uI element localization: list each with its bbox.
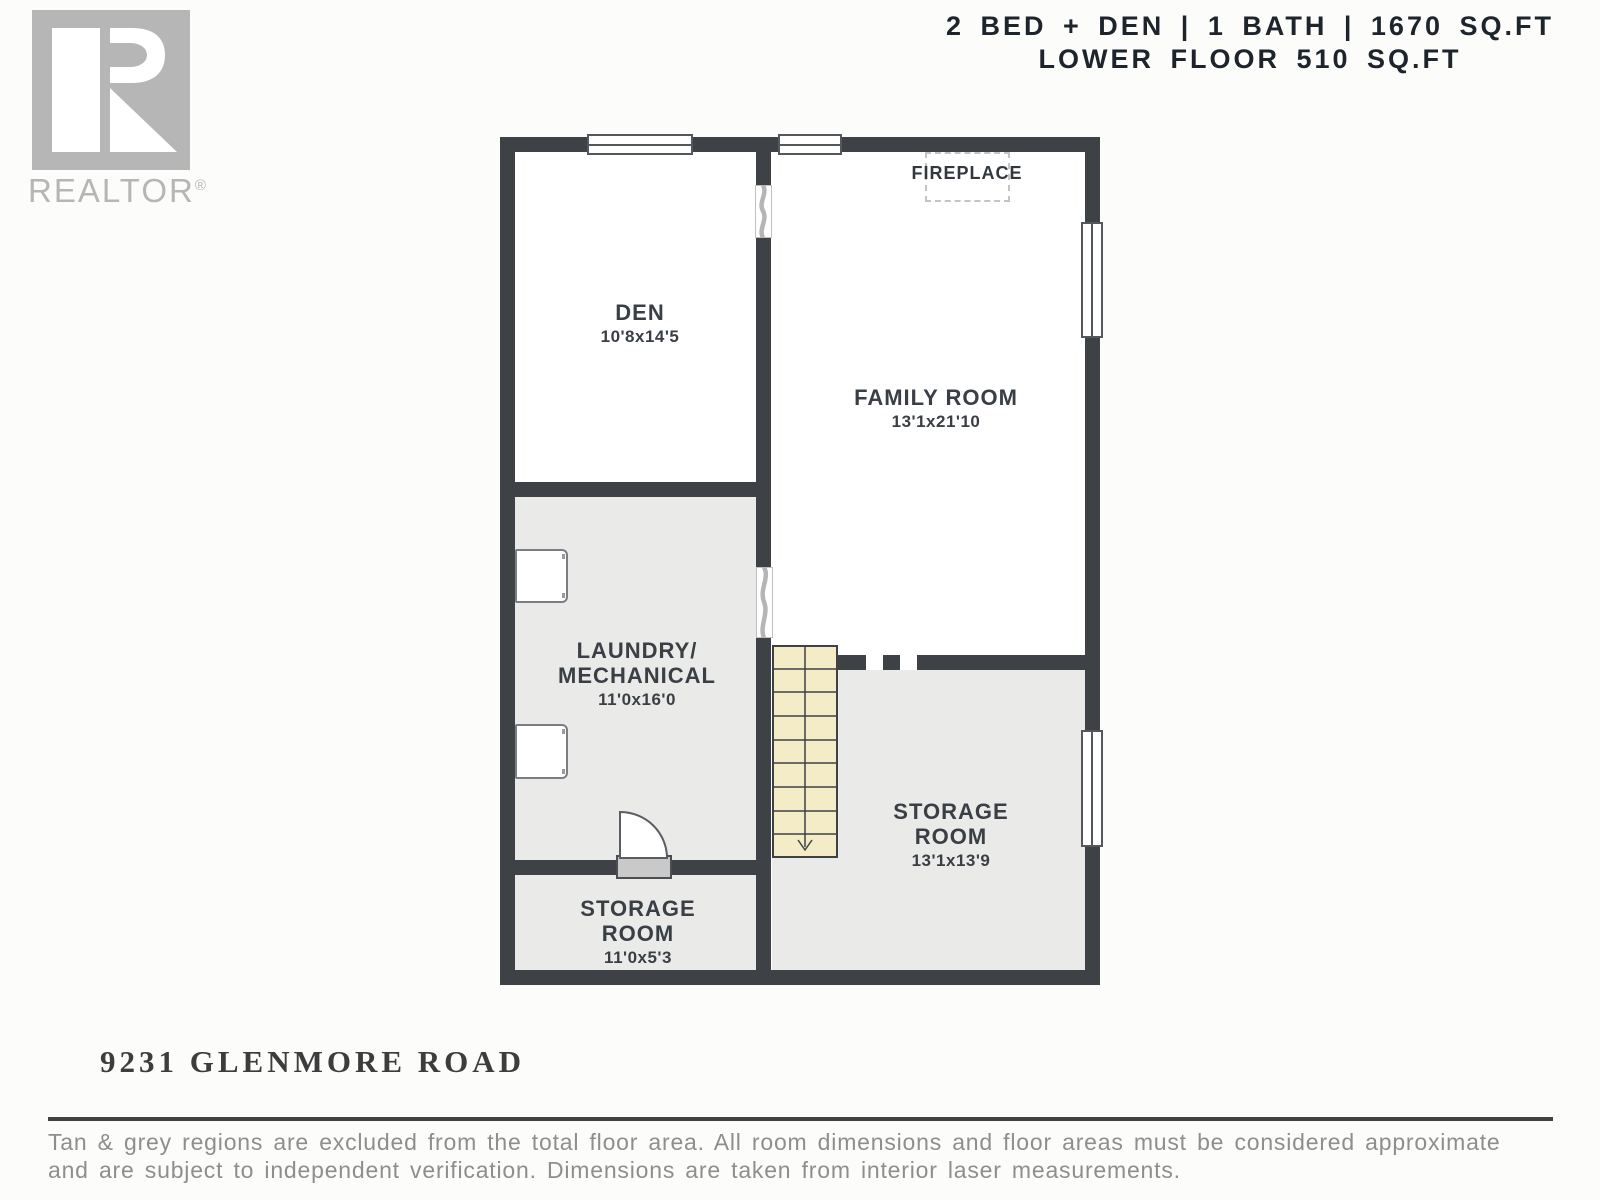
room-label-den: DEN 10'8x14'5 [601, 300, 680, 349]
laundry-name-line1: LAUNDRY/ [558, 638, 716, 663]
fireplace-label: FIREPLACE [911, 163, 1022, 184]
wall-break-laundry-stairs-icon [756, 567, 773, 638]
window-den-top [587, 134, 693, 155]
washer-icon [515, 549, 568, 603]
wall-storage-main-dashed-opening [866, 655, 927, 670]
realtor-wordmark: REALTOR [28, 172, 195, 209]
family-room-name: FAMILY ROOM [854, 385, 1018, 410]
room-label-laundry: LAUNDRY/ MECHANICAL 11'0x16'0 [558, 638, 716, 712]
stairs [772, 645, 838, 858]
door-swing-icon [617, 795, 673, 861]
floorplan-page: { "branding": { "logo_text": "REALTOR", … [0, 0, 1600, 1200]
realtor-logo-text: REALTOR® [28, 172, 208, 210]
laundry-name-line2: MECHANICAL [558, 663, 716, 688]
appliance-knob [562, 729, 565, 734]
realtor-logo-icon [32, 10, 190, 170]
storage-small-name-line2: ROOM [580, 921, 695, 946]
wall-storage-main-solid [927, 655, 1085, 670]
window-pane-line [1091, 732, 1093, 845]
storage-small-dims: 11'0x5'3 [580, 946, 695, 970]
disclaimer-line-2: and are subject to independent verificat… [48, 1156, 1568, 1184]
wall-outer-left [500, 137, 515, 985]
appliance-knob [562, 554, 565, 559]
wall-interior-vertical [756, 152, 771, 970]
window-pane-line [589, 144, 691, 146]
property-address: 9231 GLENMORE ROAD [100, 1044, 525, 1080]
storage-small-name-line1: STORAGE [580, 896, 695, 921]
window-family-right [1081, 222, 1103, 338]
storage-main-name-line1: STORAGE [893, 799, 1008, 824]
laundry-dims: 11'0x16'0 [558, 688, 716, 712]
registered-mark-icon: ® [195, 177, 208, 194]
dryer-icon [515, 724, 568, 779]
window-pane-line [1091, 224, 1093, 336]
title-line-1: 2 BED + DEN | 1 BATH | 1670 SQ.FT [920, 10, 1580, 43]
wall-storage-main-stub [838, 655, 866, 670]
room-label-family: FAMILY ROOM 13'1x21'10 [854, 385, 1018, 434]
window-pane-line [780, 144, 840, 146]
wall-break-den-family-icon [755, 185, 772, 238]
window-family-top [778, 134, 842, 155]
disclaimer-line-1: Tan & grey regions are excluded from the… [48, 1128, 1568, 1156]
appliance-knob [562, 769, 565, 774]
family-room-dims: 13'1x21'10 [854, 410, 1018, 434]
header-title: 2 BED + DEN | 1 BATH | 1670 SQ.FT LOWER … [920, 10, 1580, 76]
wall-outer-bottom [500, 970, 1100, 985]
den-dims: 10'8x14'5 [601, 325, 680, 349]
storage-main-name-line2: ROOM [893, 824, 1008, 849]
storage-main-dims: 13'1x13'9 [893, 849, 1008, 873]
den-name: DEN [601, 300, 680, 325]
window-storage-right [1081, 730, 1103, 847]
room-label-storage-small: STORAGE ROOM 11'0x5'3 [580, 896, 695, 970]
appliance-knob [562, 593, 565, 598]
wall-den-laundry [515, 482, 756, 497]
title-line-2: LOWER FLOOR 510 SQ.FT [920, 43, 1580, 76]
footer-divider [48, 1117, 1553, 1121]
room-label-storage-main: STORAGE ROOM 13'1x13'9 [893, 799, 1008, 873]
